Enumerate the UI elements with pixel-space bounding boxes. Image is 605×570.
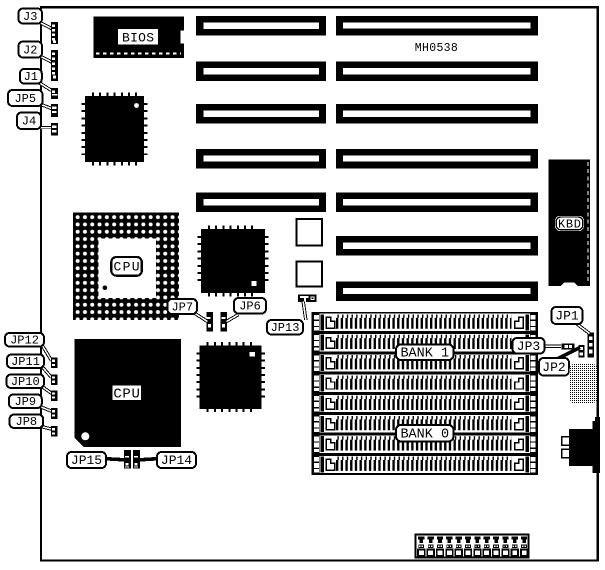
svg-text:BIOS: BIOS [122, 31, 154, 46]
svg-text:JP6: JP6 [239, 300, 261, 314]
svg-text:JP9: JP9 [14, 395, 36, 409]
svg-text:J3: J3 [23, 10, 37, 24]
svg-text:JP15: JP15 [71, 453, 102, 468]
svg-text:JP2: JP2 [542, 360, 565, 375]
svg-text:JP10: JP10 [11, 375, 40, 389]
svg-text:JP7: JP7 [171, 300, 193, 314]
svg-text:JP14: JP14 [161, 453, 192, 468]
svg-text:MH0538: MH0538 [415, 42, 458, 55]
svg-text:CPU: CPU [114, 260, 140, 275]
svg-text:JP12: JP12 [10, 334, 39, 348]
svg-text:JP13: JP13 [271, 321, 300, 335]
svg-text:JP11: JP11 [11, 355, 40, 369]
svg-text:JP8: JP8 [16, 415, 38, 429]
svg-text:J1: J1 [24, 70, 38, 84]
svg-text:JP1: JP1 [555, 309, 579, 324]
svg-text:BANK 0: BANK 0 [400, 428, 449, 443]
svg-text:J2: J2 [23, 43, 37, 57]
svg-text:BANK 1: BANK 1 [400, 347, 449, 362]
svg-text:CPU: CPU [113, 386, 140, 402]
svg-text:KBD: KBD [558, 218, 581, 232]
svg-text:JP3: JP3 [517, 339, 540, 354]
svg-text:J4: J4 [22, 115, 36, 129]
svg-text:JP5: JP5 [14, 92, 36, 106]
